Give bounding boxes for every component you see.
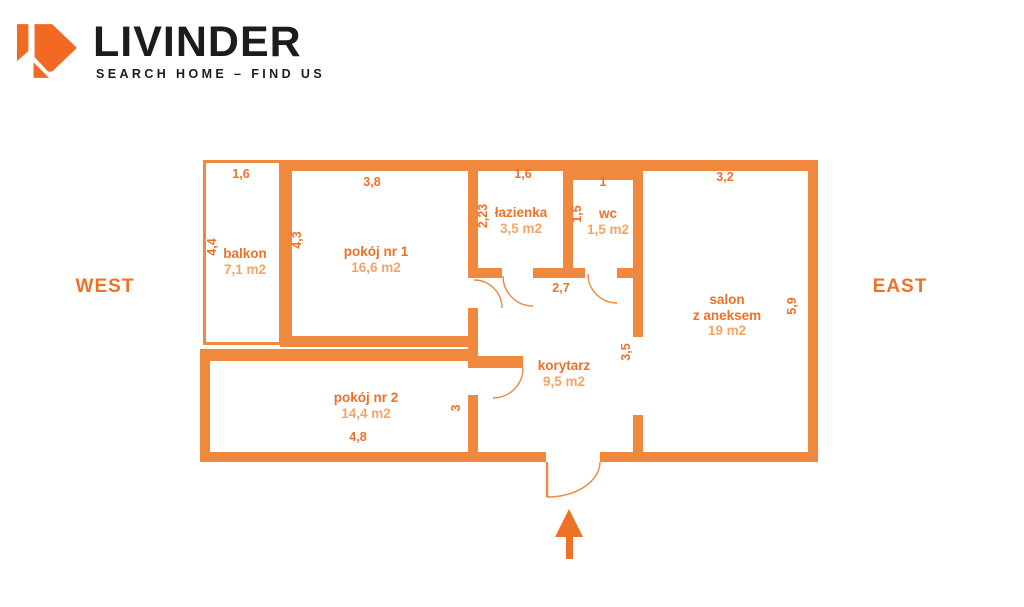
room-label-korytarz: korytarz9,5 m2 bbox=[538, 358, 591, 389]
bathroom-door-arc bbox=[503, 276, 533, 306]
floor-plan: WEST EAST balkon7,1 m2pokój nr 116,6 m2ł… bbox=[0, 0, 1024, 607]
dimension-label: 2,23 bbox=[476, 204, 490, 228]
room-label-wc: wc1,5 m2 bbox=[587, 206, 629, 237]
room-area: 14,4 m2 bbox=[334, 406, 399, 422]
wall-top bbox=[280, 160, 818, 171]
dimension-label: 4,4 bbox=[205, 238, 219, 255]
wall-room2-top bbox=[200, 349, 478, 361]
wall-salon-left-upper bbox=[633, 171, 643, 337]
wall-bath-bottom-b bbox=[533, 268, 563, 278]
wc-door-arc bbox=[588, 274, 617, 303]
wall-left bbox=[200, 350, 210, 462]
wall-right bbox=[808, 160, 818, 462]
room-label-lazienka: łazienka3,5 m2 bbox=[495, 205, 548, 236]
room-label-pokoj-1: pokój nr 116,6 m2 bbox=[344, 244, 409, 275]
wall-room1-bottom bbox=[280, 336, 478, 347]
wall-room1-left bbox=[280, 160, 292, 347]
dimension-label: 1,6 bbox=[514, 167, 531, 181]
room-name: pokój nr 1 bbox=[344, 244, 409, 260]
room1-door-arc bbox=[474, 280, 502, 308]
wall-room1-right-lower bbox=[468, 308, 478, 347]
entrance-door-arc bbox=[547, 462, 600, 497]
compass-east-label: EAST bbox=[873, 276, 928, 298]
dimension-label: 3,5 bbox=[619, 343, 633, 360]
room2-door-arc bbox=[493, 368, 523, 398]
door-swing-layer bbox=[0, 0, 1024, 607]
wall-hall-connector bbox=[468, 347, 478, 368]
wall-bath-bottom-a bbox=[478, 268, 502, 278]
room-area: 3,5 m2 bbox=[495, 221, 548, 237]
dimension-label: 3,8 bbox=[363, 175, 380, 189]
dimension-label: 1,6 bbox=[232, 167, 249, 181]
room-name: korytarz bbox=[538, 358, 591, 374]
room-name: pokój nr 2 bbox=[334, 390, 399, 406]
dimension-label: 4,8 bbox=[349, 430, 366, 444]
dimension-label: 2,7 bbox=[552, 281, 569, 295]
wall-wc-bottom-a bbox=[563, 268, 585, 278]
room-name: balkon bbox=[223, 246, 267, 262]
dimension-label: 3 bbox=[449, 405, 463, 412]
wall-salon-left-lower bbox=[633, 415, 643, 462]
room-area: 19 m2 bbox=[693, 323, 761, 339]
dimension-label: 1 bbox=[600, 175, 607, 189]
wall-bottom-left bbox=[200, 452, 546, 462]
dimension-label: 5,9 bbox=[785, 297, 799, 314]
page: LIVINDER SEARCH HOME – FIND US bbox=[0, 0, 1024, 607]
room-name: z aneksem bbox=[693, 308, 761, 324]
room-area: 1,5 m2 bbox=[587, 222, 629, 238]
room-name: wc bbox=[587, 206, 629, 222]
room-area: 9,5 m2 bbox=[538, 374, 591, 390]
room-label-balkon: balkon7,1 m2 bbox=[223, 246, 267, 277]
room-area: 7,1 m2 bbox=[223, 262, 267, 278]
room-area: 16,6 m2 bbox=[344, 260, 409, 276]
entrance-arrow-icon bbox=[555, 509, 583, 559]
room-name: łazienka bbox=[495, 205, 548, 221]
room-name: salon bbox=[693, 292, 761, 308]
dimension-label: 3,2 bbox=[716, 170, 733, 184]
dimension-label: 4,3 bbox=[290, 231, 304, 248]
room-label-salon: salonz aneksem19 m2 bbox=[693, 292, 761, 339]
room-label-pokoj-2: pokój nr 214,4 m2 bbox=[334, 390, 399, 421]
compass-west-label: WEST bbox=[76, 276, 135, 298]
wall-hall-stub bbox=[478, 356, 523, 368]
dimension-label: 1,5 bbox=[570, 205, 584, 222]
wall-wc-left bbox=[563, 180, 573, 278]
wall-room2-right bbox=[468, 395, 478, 462]
